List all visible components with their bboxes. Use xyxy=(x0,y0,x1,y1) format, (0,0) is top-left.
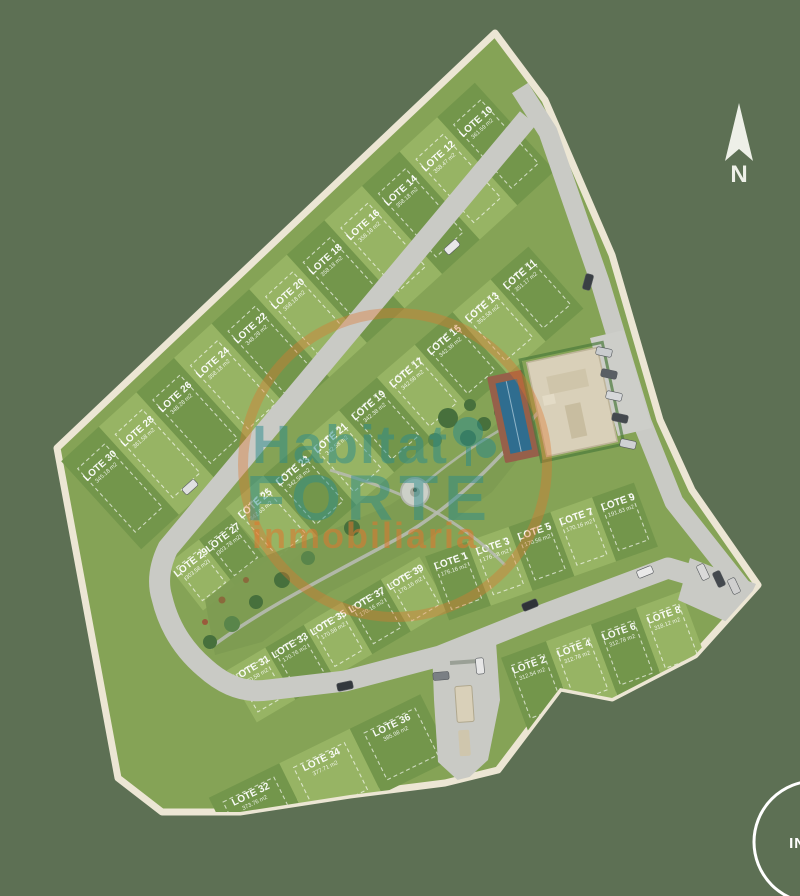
site-map: LOTE 10361.59 m2LOTE 12358.47 m2LOTE 143… xyxy=(0,0,800,896)
watermark-line3: inmobiliaria xyxy=(252,515,478,556)
compass-label: N xyxy=(730,161,747,188)
inicio-button-label[interactable]: INICIO xyxy=(789,835,800,852)
